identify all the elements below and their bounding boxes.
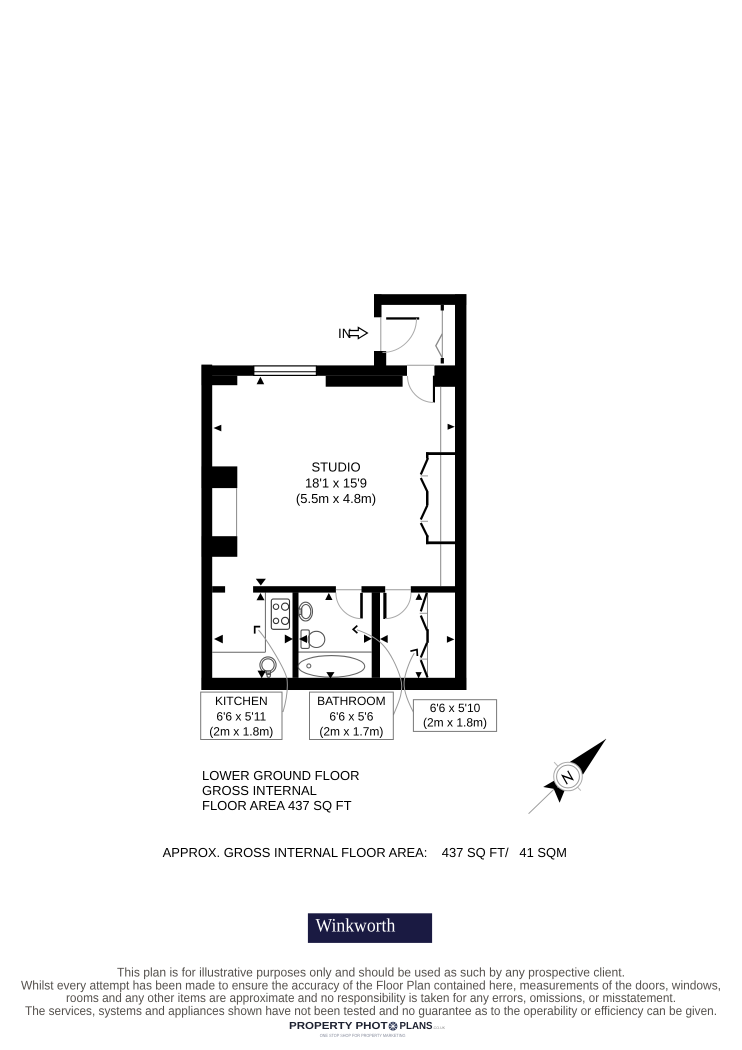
svg-text:This plan is for illustrative: This plan is for illustrative purposes o… xyxy=(117,965,625,979)
svg-text:6'6 x 5'11: 6'6 x 5'11 xyxy=(216,709,266,723)
svg-text:Winkworth: Winkworth xyxy=(316,916,396,937)
svg-text:KITCHEN: KITCHEN xyxy=(215,694,268,708)
svg-text:(2m x 1.8m): (2m x 1.8m) xyxy=(423,716,487,730)
svg-text:(5.5m x 4.8m): (5.5m x 4.8m) xyxy=(296,491,376,506)
svg-text:PLANS: PLANS xyxy=(400,1021,433,1032)
svg-text:LOWER GROUND FLOOR: LOWER GROUND FLOOR xyxy=(202,768,359,783)
svg-text:6'6 x 5'10: 6'6 x 5'10 xyxy=(430,701,481,715)
svg-text:18'1 x 15'9: 18'1 x 15'9 xyxy=(305,475,367,490)
svg-text:ONE STOP SHOP FOR PROPERTY MAR: ONE STOP SHOP FOR PROPERTY MARKETING xyxy=(320,1033,406,1038)
svg-text:The services, systems and appl: The services, systems and appliances sho… xyxy=(25,1004,717,1018)
svg-text:GROSS INTERNAL: GROSS INTERNAL xyxy=(202,783,317,798)
svg-text:BATHROOM: BATHROOM xyxy=(317,694,385,708)
svg-text:APPROX. GROSS INTERNAL FLOOR A: APPROX. GROSS INTERNAL FLOOR AREA: 437 S… xyxy=(163,845,567,860)
svg-text:6'6 x 5'6: 6'6 x 5'6 xyxy=(329,709,373,723)
svg-text:.CO.UK: .CO.UK xyxy=(433,1026,446,1030)
svg-text:(2m x 1.8m): (2m x 1.8m) xyxy=(209,724,273,738)
svg-text:PROPERTY PHOT: PROPERTY PHOT xyxy=(289,1021,388,1032)
svg-text:(2m x 1.7m): (2m x 1.7m) xyxy=(319,724,383,738)
svg-text:STUDIO: STUDIO xyxy=(311,460,360,475)
svg-text:FLOOR AREA 437 SQ FT: FLOOR AREA 437 SQ FT xyxy=(202,798,352,813)
